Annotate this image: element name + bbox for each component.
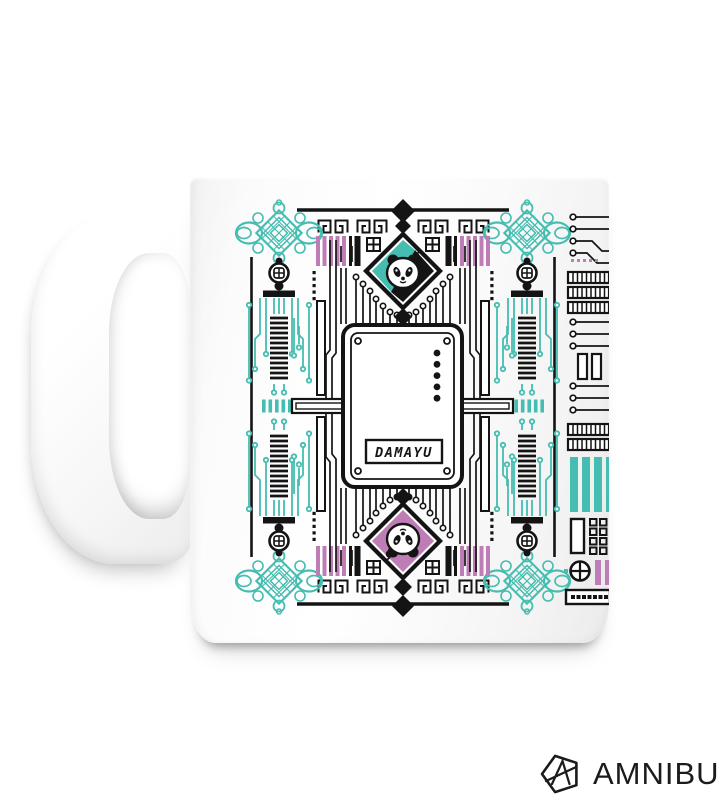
dotted-bar — [566, 590, 609, 604]
brand-name: AMNIBUS — [593, 756, 720, 792]
bus-bar-left — [292, 399, 343, 413]
damayu-label: DAMAYU — [374, 445, 433, 461]
product-photo: DAMAYU — [0, 0, 720, 800]
teal-bar-block — [570, 457, 609, 512]
panda-bottom-diamond — [363, 488, 443, 617]
mug-handle-hole — [109, 253, 189, 519]
center-panel: DAMAYU — [343, 325, 462, 487]
crosshair-icon — [571, 562, 590, 581]
right-edge-circuit-strip — [564, 214, 609, 604]
panda-top-diamond — [363, 199, 443, 326]
pentagon-a-icon — [538, 753, 586, 795]
mug-print-design: DAMAYU — [190, 177, 609, 643]
mug-handle — [31, 215, 193, 564]
bus-bar-right — [462, 399, 513, 413]
brand-logo: AMNIBUS — [538, 753, 720, 795]
mug-body: DAMAYU — [190, 177, 609, 643]
